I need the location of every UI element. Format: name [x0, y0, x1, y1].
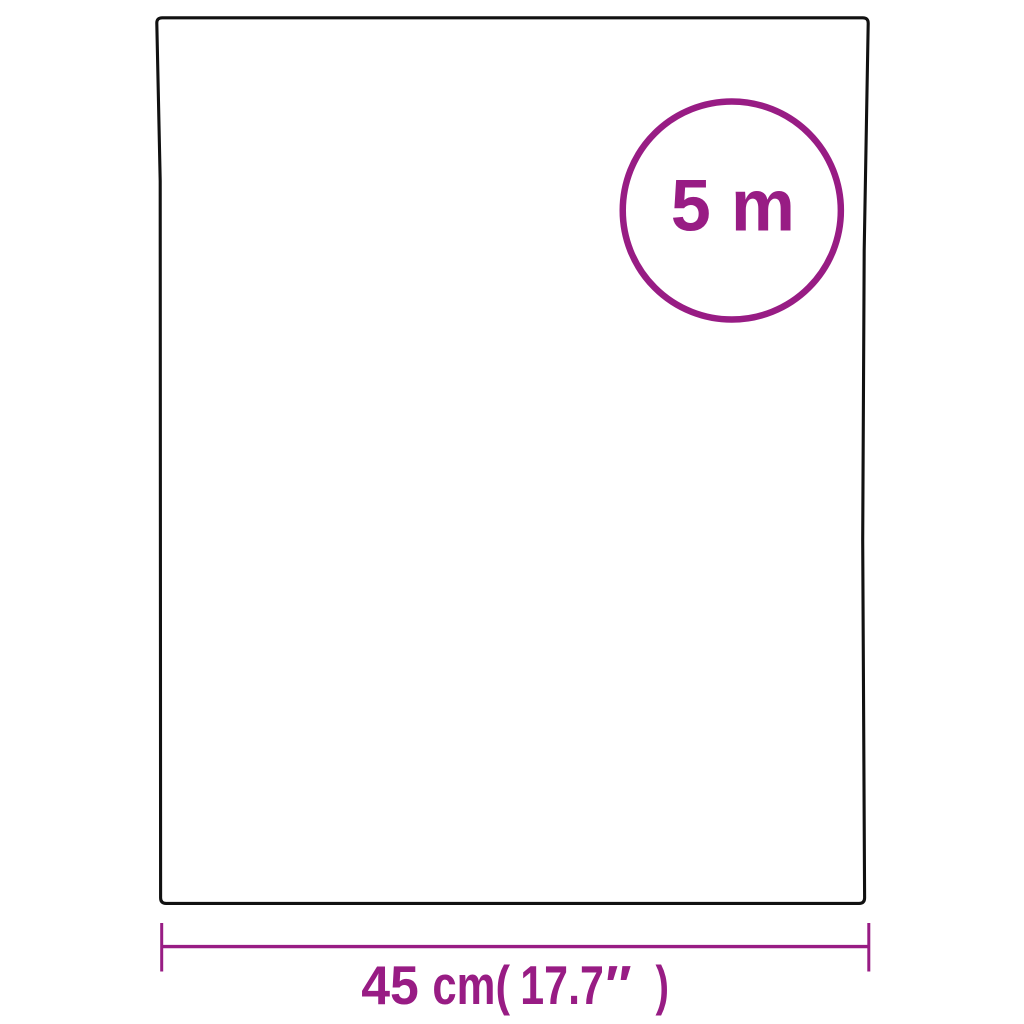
svg-text:″: ″: [605, 954, 631, 1016]
svg-text:5 m: 5 m: [671, 166, 795, 247]
svg-text:): ): [656, 954, 670, 1016]
svg-text:17.7: 17.7: [520, 954, 604, 1016]
svg-text:cm(: cm(: [432, 954, 510, 1016]
svg-text:45: 45: [361, 954, 419, 1016]
